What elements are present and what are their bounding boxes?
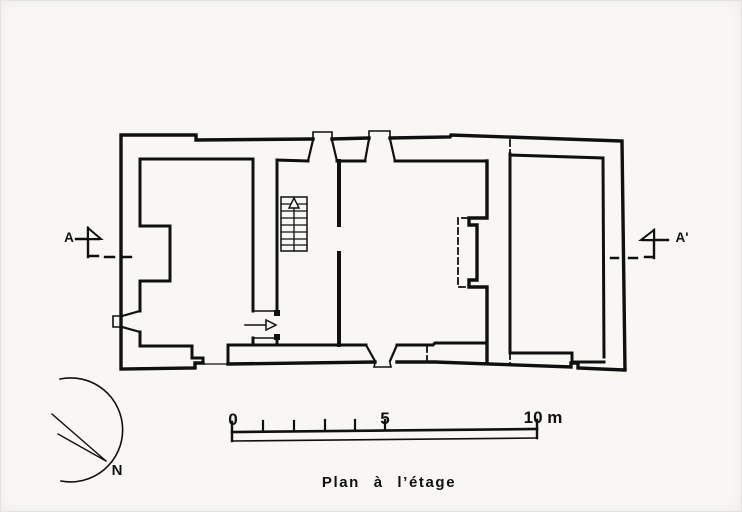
scanned-plan-page: A A' N 0 5 10 m Plan à l’étage [0, 0, 742, 512]
door-with-arrow [245, 310, 280, 340]
fireplace-flue-dashed [458, 218, 478, 287]
stair-up-arrow-icon [289, 198, 299, 208]
section-flag-icon [641, 230, 654, 240]
hidden-edges-dashed [427, 140, 510, 364]
door-stop-block [274, 310, 280, 316]
building-plan [113, 131, 625, 370]
stair-hall-walls [253, 159, 341, 345]
scale-bar: 0 5 10 m [228, 408, 562, 441]
north-compass: N [52, 378, 123, 482]
window-splays [122, 139, 397, 361]
caption: Plan à l’étage [322, 474, 456, 491]
scale-bar-minor-ticks [263, 420, 385, 431]
scale-label-0: 0 [228, 410, 237, 429]
north-label: N [112, 462, 123, 479]
scale-label-5: 5 [380, 409, 389, 428]
left-room-walls [140, 159, 487, 363]
door-stop-block [274, 334, 280, 340]
section-label-a: A [64, 230, 74, 245]
section-flag-icon [88, 228, 101, 239]
staircase [281, 197, 307, 251]
compass-needle [52, 414, 106, 461]
scale-bar-bottom-edge [232, 438, 537, 441]
exterior-wall-outer [121, 135, 625, 370]
section-flag-lines [643, 230, 668, 258]
section-label-a-prime: A' [676, 230, 689, 245]
floor-plan-drawing: A A' N 0 5 10 m Plan à l’étage [0, 0, 742, 512]
door-arrow-icon [266, 320, 276, 330]
fireplace-wall [469, 161, 487, 362]
right-room-walls [510, 154, 604, 362]
scale-label-10m: 10 m [524, 408, 563, 427]
